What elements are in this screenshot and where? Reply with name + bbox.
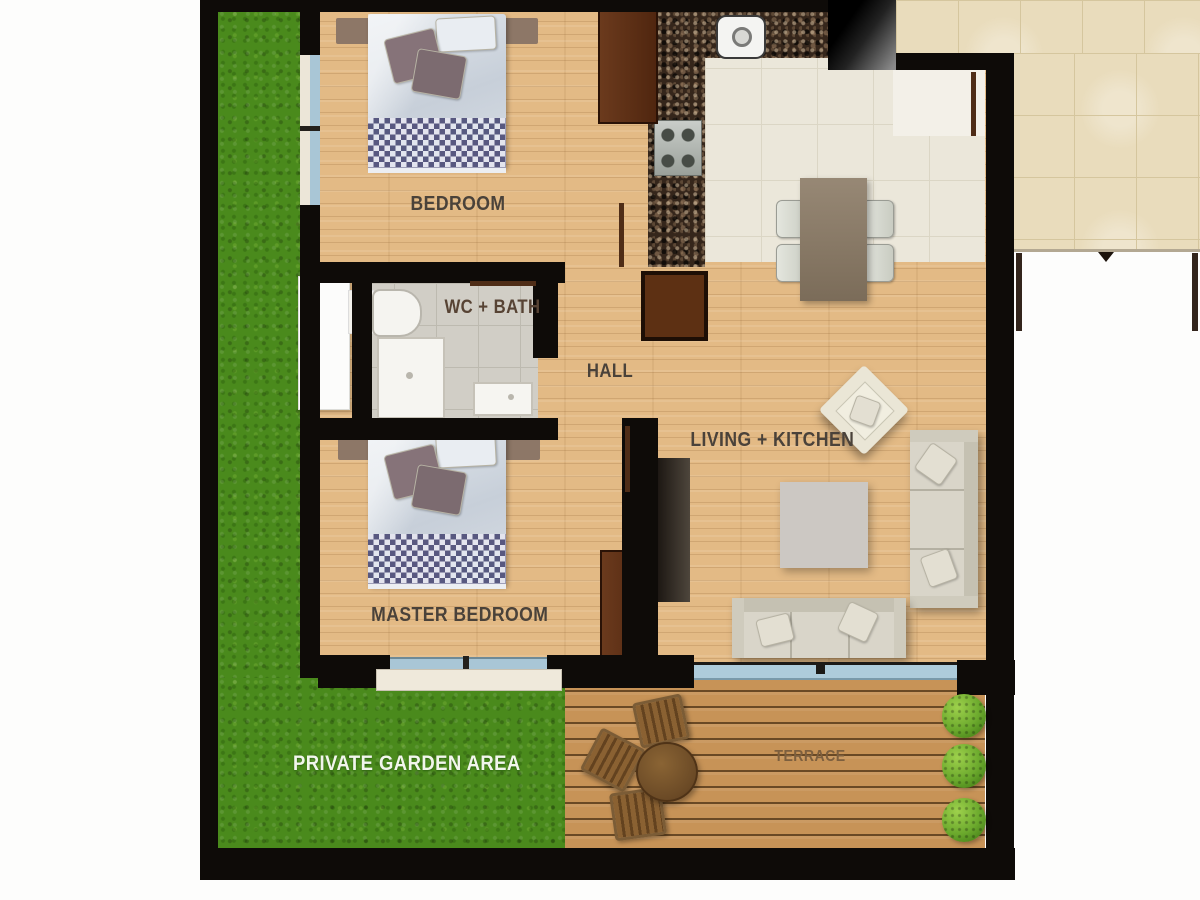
master-bed-blanket xyxy=(368,534,506,589)
wall-bedroom-bottom xyxy=(318,262,565,283)
terrace-sliding-door-glass xyxy=(694,662,957,680)
wall-top-right xyxy=(893,53,1012,70)
rug xyxy=(780,482,868,568)
sofa-right-arm-bottom xyxy=(910,596,978,608)
communal-tile-floor-right xyxy=(1012,53,1200,250)
garden-strip-left xyxy=(218,10,300,680)
kitchen-sink-drain xyxy=(732,27,752,47)
sofa-bottom-arm-left xyxy=(732,598,744,658)
wall-right xyxy=(986,53,1014,848)
dining-table xyxy=(800,178,867,301)
sofa-bottom-arm-right xyxy=(894,598,906,658)
master-dark-pillow-2 xyxy=(411,464,468,516)
bedroom-wardrobe xyxy=(598,10,658,124)
neighbor-door-wedge xyxy=(1098,252,1114,262)
bedroom-label: BEDROOM xyxy=(405,193,511,216)
bedroom-window-mullion xyxy=(300,126,320,131)
sofa-right-back xyxy=(964,430,978,608)
wall-bath-bottom xyxy=(318,418,558,440)
terrace-sliding-door-handle xyxy=(816,664,825,674)
master-window-mullion xyxy=(463,656,469,669)
wall-top xyxy=(200,0,830,12)
hall-label: HALL xyxy=(575,361,645,383)
master-window-sill xyxy=(376,669,562,691)
wc-bath-label: WC + BATH xyxy=(438,297,548,319)
bathroom-door-leaf xyxy=(470,281,536,286)
sofa-right-seam-2 xyxy=(910,548,964,550)
entry-door-leaf xyxy=(971,72,976,136)
communal-tile-floor-top xyxy=(896,0,1200,53)
cooktop-hob xyxy=(654,120,702,176)
bedroom-bed-blanket xyxy=(368,118,506,173)
bedroom-door-leaf xyxy=(619,203,624,267)
terrace-round-table xyxy=(636,742,698,802)
communal-floor-edge xyxy=(1012,249,1200,252)
master-door-leaf xyxy=(625,426,630,492)
terrace-plant-2 xyxy=(942,744,986,788)
bedroom-white-pillow xyxy=(435,15,497,52)
wall-corner-terrace xyxy=(957,660,1015,695)
living-kitchen-label: LIVING + KITCHEN xyxy=(690,429,841,452)
neighbor-door-jamb-right xyxy=(1192,253,1198,331)
master-bedroom-label: MASTER BEDROOM xyxy=(371,604,534,627)
floor-plan: BEDROOM WC + BATH HALL LIVING + KITCHEN … xyxy=(0,0,1200,900)
hall-cabinet xyxy=(641,271,708,341)
bathtub xyxy=(372,289,422,337)
terrace-plant-3 xyxy=(942,798,986,842)
tv-unit xyxy=(654,458,690,602)
bedroom-dark-pillow-2 xyxy=(411,48,468,100)
sofa-bottom-back xyxy=(732,598,906,612)
wall-bath-left xyxy=(352,283,372,440)
bathroom-sink xyxy=(473,382,533,416)
shower-drain xyxy=(406,372,413,379)
neighbor-door-jamb-left xyxy=(1016,253,1022,331)
wall-left-outer xyxy=(200,0,218,880)
sofa-right-arm-top xyxy=(910,430,978,442)
terrace-label: TERRACE xyxy=(766,748,854,766)
bathroom-sink-drain xyxy=(508,394,514,400)
wall-bottom-outer xyxy=(200,848,1015,880)
wall-master-window-right xyxy=(547,655,694,688)
sofa-right-seam-1 xyxy=(910,489,964,491)
entry-door xyxy=(828,0,896,70)
terrace-plant-1 xyxy=(942,694,986,738)
private-garden-label: PRIVATE GARDEN AREA xyxy=(293,752,483,776)
